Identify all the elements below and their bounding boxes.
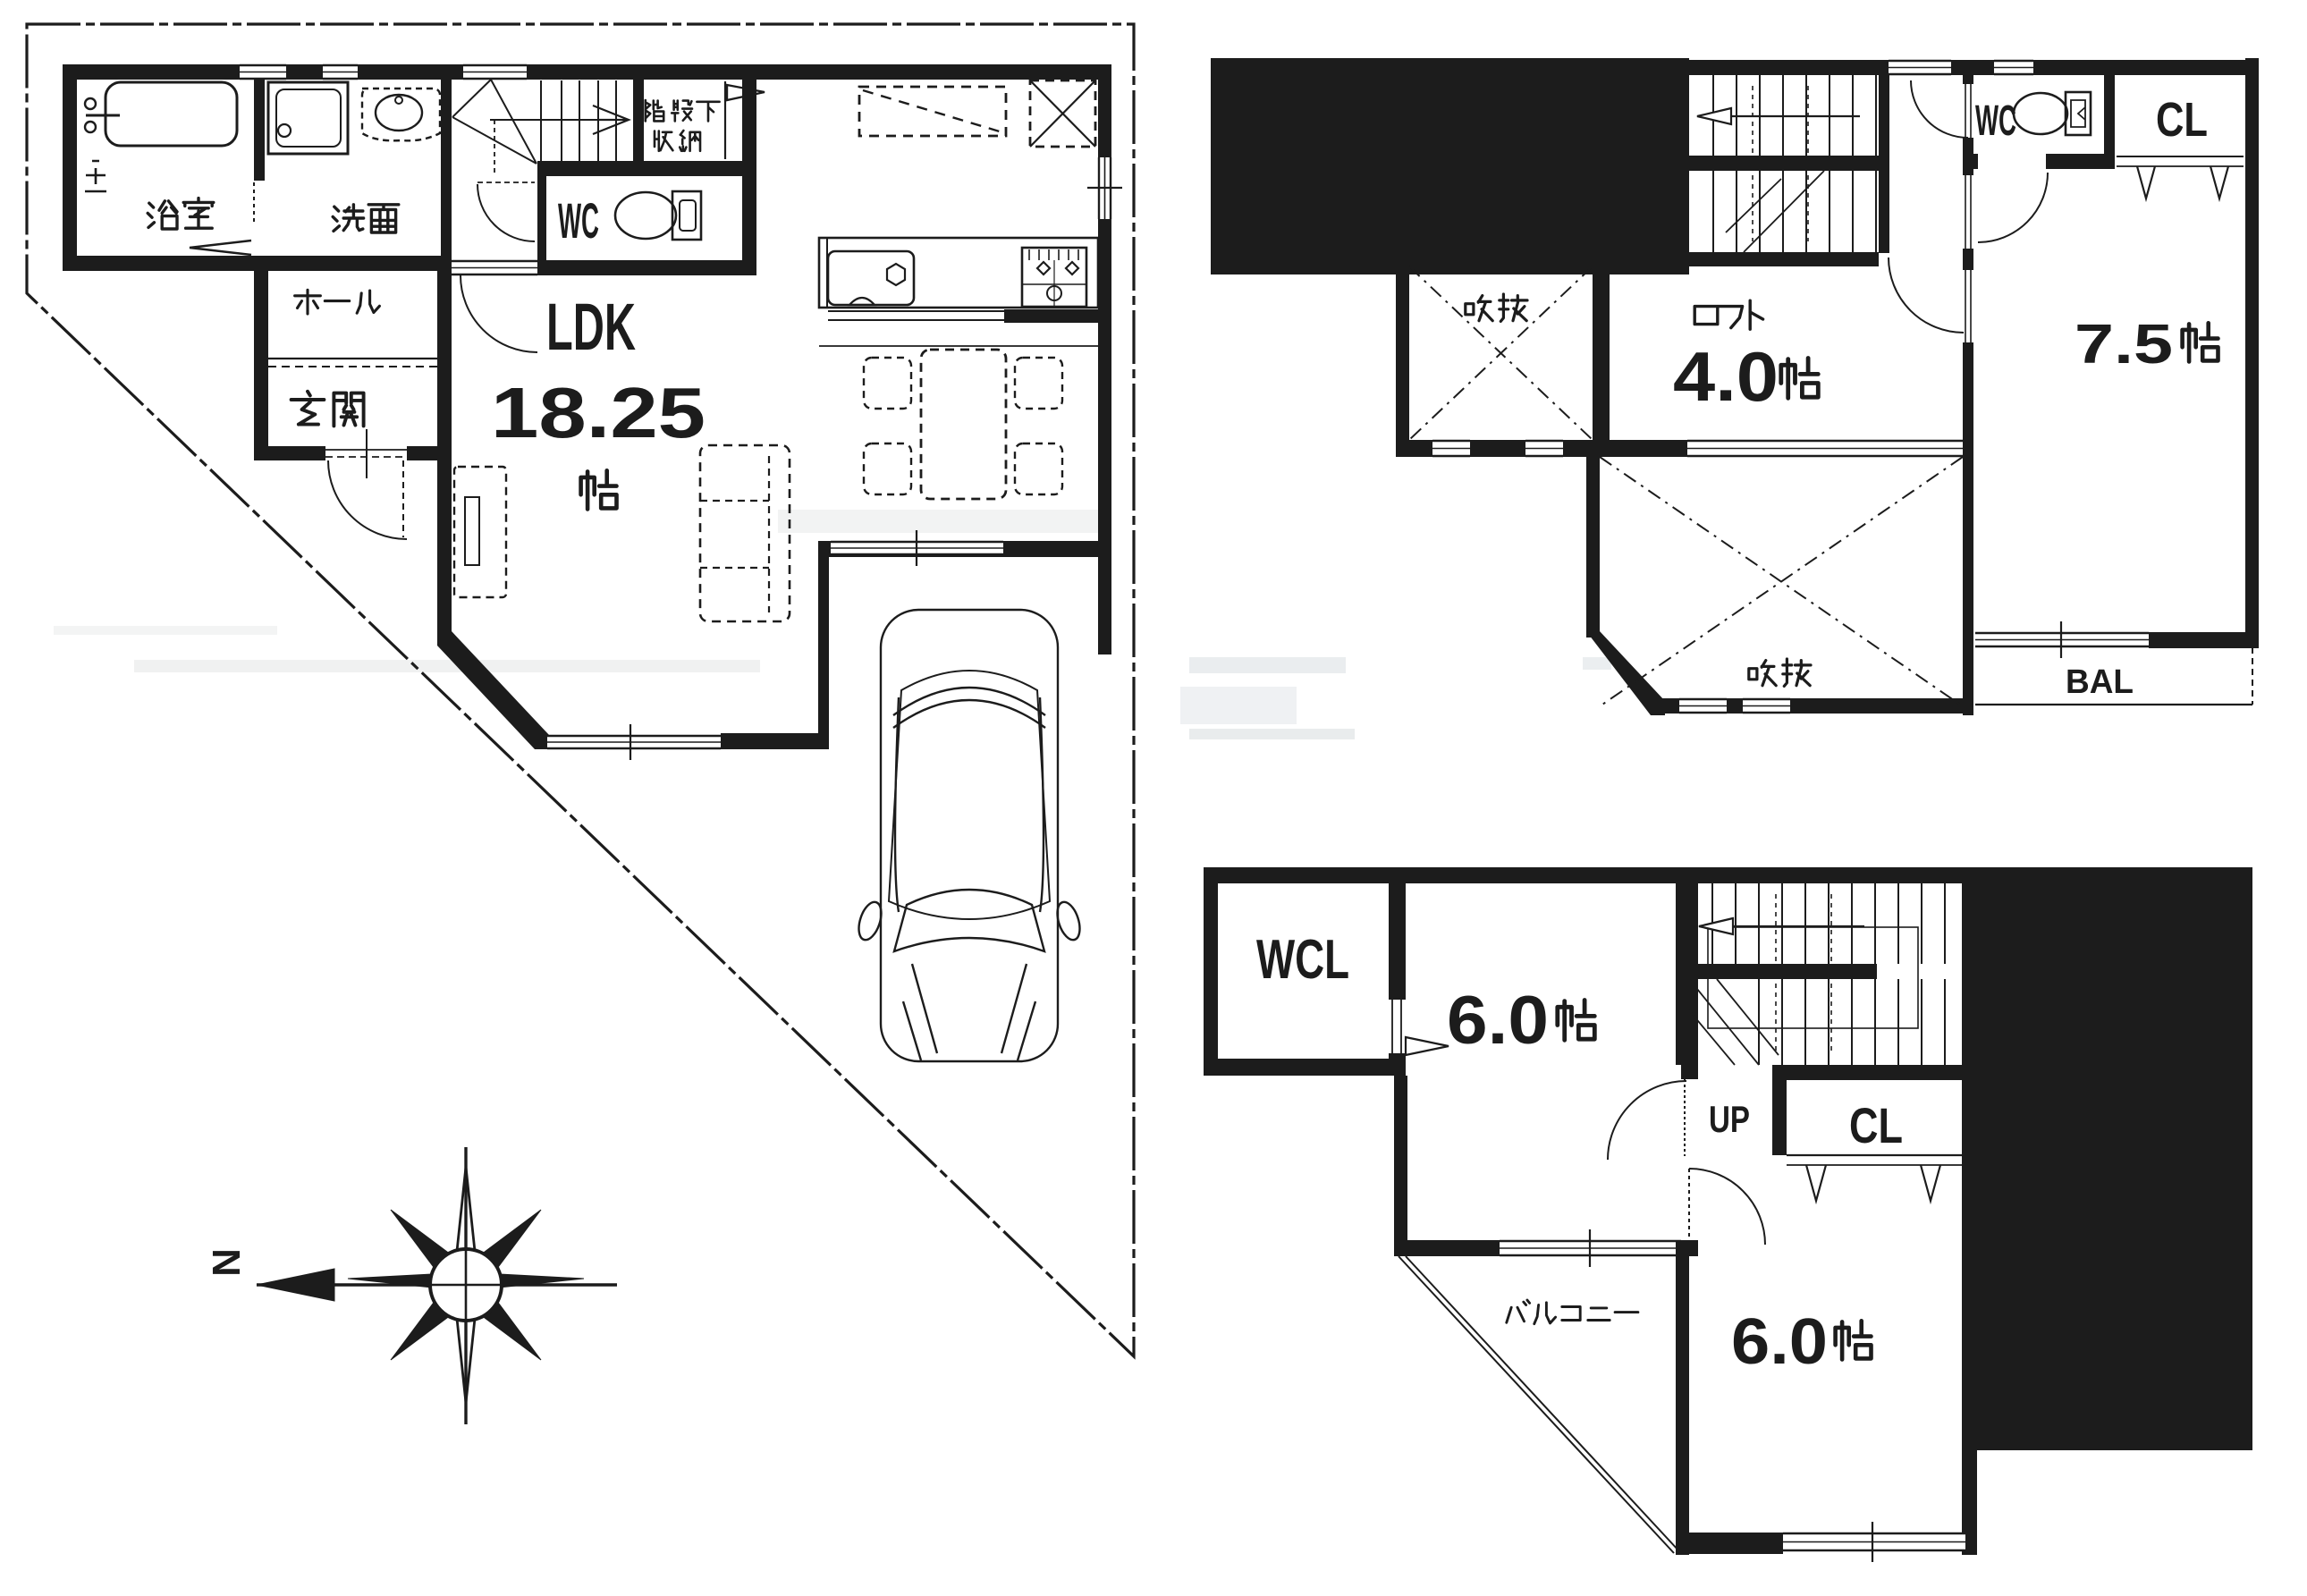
svg-text:6.0: 6.0 — [1731, 1306, 1828, 1378]
svg-text:N: N — [205, 1248, 249, 1277]
svg-text:CL: CL — [2156, 93, 2208, 147]
svg-text:BAL: BAL — [2066, 663, 2134, 701]
svg-text:WC: WC — [1975, 97, 2016, 145]
svg-text:4.0: 4.0 — [1673, 337, 1779, 416]
svg-text:6.0: 6.0 — [1447, 983, 1549, 1059]
svg-text:UP: UP — [1709, 1098, 1750, 1140]
svg-text:LDK: LDK — [546, 290, 636, 364]
svg-text:CL: CL — [1849, 1097, 1903, 1153]
svg-text:WC: WC — [558, 192, 599, 249]
svg-text:WCL: WCL — [1256, 929, 1349, 991]
svg-text:7.5: 7.5 — [2075, 314, 2173, 376]
svg-text:18.25: 18.25 — [491, 373, 706, 452]
